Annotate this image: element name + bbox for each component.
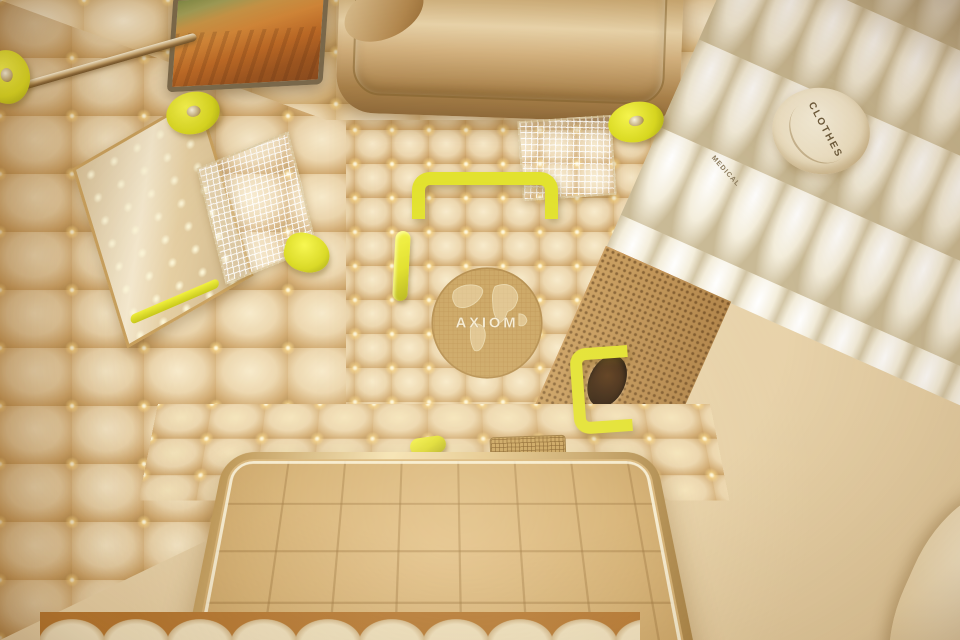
globe-logo-svg: AXIOM xyxy=(430,266,544,380)
disc-screw xyxy=(628,114,644,127)
desert-landscape-screen xyxy=(167,0,330,92)
axiom-logo-text: AXIOM xyxy=(456,316,519,332)
module-interior-photo: ✦ ✦ ✦ xyxy=(0,0,960,640)
yellow-u-handrail xyxy=(412,172,558,219)
yellow-c-handle xyxy=(569,345,633,435)
disc-screw xyxy=(185,105,201,119)
axiom-globe-logo: AXIOM xyxy=(430,266,544,380)
disc-screw xyxy=(0,68,14,84)
foreground-cushion-scallops xyxy=(40,612,640,640)
